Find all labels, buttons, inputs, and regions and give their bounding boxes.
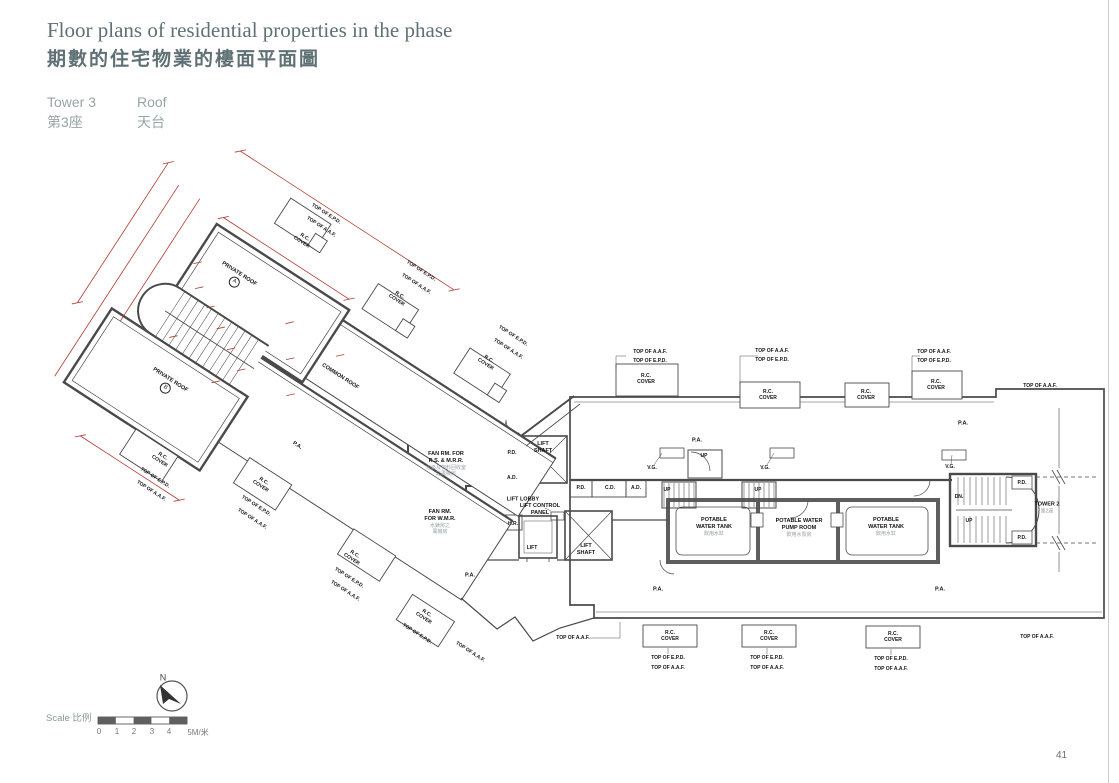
top-aaf-label: TOP OF A.A.F. — [633, 349, 667, 355]
top-aaf-label: TOP OF A.A.F. — [556, 635, 590, 641]
scale-tick: 4 — [167, 727, 171, 736]
top-aaf-label: TOP OF A.A.F. — [755, 348, 789, 354]
rc-cover-label: R.C.COVER — [760, 630, 778, 643]
fan-room-wmr-label: FAN RM.FOR W.M.R. 水錶房之風機房 — [424, 509, 455, 535]
pa-label: P.A. — [653, 587, 663, 594]
top-aaf-label: TOP OF A.A.F. — [917, 349, 951, 355]
brochure-page: Floor plans of residential properties in… — [0, 0, 1119, 783]
scale-label: Scale 比例 — [46, 710, 91, 724]
top-aaf-label: TOP OF A.A.F. — [874, 666, 908, 672]
up-label: UP — [755, 487, 762, 493]
scale-tick: 0 — [97, 727, 101, 736]
top-aaf-label: TOP OF A.A.F. — [651, 665, 685, 671]
vg-label: V.G. — [760, 465, 770, 471]
scale-tick: 5M/米 — [187, 727, 208, 738]
vg-label: V.G. — [945, 464, 955, 470]
rc-cover-label: R.C.COVER — [884, 631, 902, 644]
dn-label: DN. — [955, 494, 964, 500]
top-epd-label: TOP OF E.P.D. — [750, 655, 784, 661]
lift-car-label: LIFT — [527, 545, 538, 551]
top-epd-label: TOP OF E.P.D. — [874, 656, 908, 662]
top-aaf-label: TOP OF A.A.F. — [750, 665, 784, 671]
hr-label: H.R. — [508, 521, 518, 527]
top-epd-label: TOP OF E.P.D. — [651, 655, 685, 661]
fan-room-rs-mrr-label: FAN RM. FORR.S. & M.R.R. 垃圾及物料回收室之風機房 — [426, 451, 466, 477]
pa-label: P.A. — [935, 587, 945, 594]
up-label: UP — [664, 487, 671, 493]
up-label: UP — [966, 518, 973, 524]
north-label: N — [160, 672, 167, 683]
top-aaf-label: TOP OF A.A.F. — [1023, 383, 1057, 389]
top-epd-label: TOP OF E.P.D. — [755, 357, 789, 363]
pa-label: P.A. — [465, 573, 475, 580]
potable-water-pump-room-label: POTABLE WATERPUMP ROOM飲用水泵房 — [776, 518, 823, 538]
north-arrow-icon — [157, 681, 187, 711]
pa-label: P.A. — [958, 421, 968, 428]
scale-bar — [98, 717, 187, 724]
top-epd-label: TOP OF E.P.D. — [917, 358, 951, 364]
right-section-group — [570, 356, 1104, 655]
ad-label: A.D. — [631, 485, 641, 491]
pa-label: P.A. — [692, 438, 702, 445]
pd-label: P.D. — [1017, 535, 1026, 541]
rc-cover-label: R.C.COVER — [661, 630, 679, 643]
pd-label: P.D. — [576, 485, 585, 491]
up-label: UP — [701, 453, 708, 459]
tower2-label: TOWER 2第2座 — [1035, 501, 1060, 514]
scale-tick: 2 — [132, 727, 136, 736]
vg-label: V.G. — [647, 465, 657, 471]
scale-tick: 3 — [150, 727, 154, 736]
top-epd-label: TOP OF E.P.D. — [633, 358, 667, 364]
rc-cover-label: R.C.COVER — [927, 379, 945, 392]
rc-cover-label: R.C.COVER — [637, 373, 655, 386]
page-number: 41 — [1056, 750, 1067, 761]
top-aaf-label: TOP OF A.A.F. — [1020, 634, 1054, 640]
ad-label: A.D. — [507, 475, 517, 481]
left-wing-group — [12, 116, 608, 665]
rc-cover-label: R.C.COVER — [857, 389, 875, 402]
rc-cover-label: R.C.COVER — [759, 389, 777, 402]
lift-shaft-label: LIFTSHAFT — [577, 543, 595, 557]
potable-water-tank-label: POTABLEWATER TANK飲用水缸 — [696, 517, 732, 537]
lift-control-panel-label: LIFT CONTROLPANEL — [520, 503, 560, 517]
lift-shaft-label: LIFTSHAFT — [534, 441, 552, 455]
potable-water-tank-label: POTABLEWATER TANK飲用水缸 — [868, 517, 904, 537]
pd-label: P.D. — [1017, 480, 1026, 486]
cd-label: C.D. — [605, 485, 615, 491]
scale-tick: 1 — [115, 727, 119, 736]
pd-label: P.D. — [507, 450, 516, 456]
